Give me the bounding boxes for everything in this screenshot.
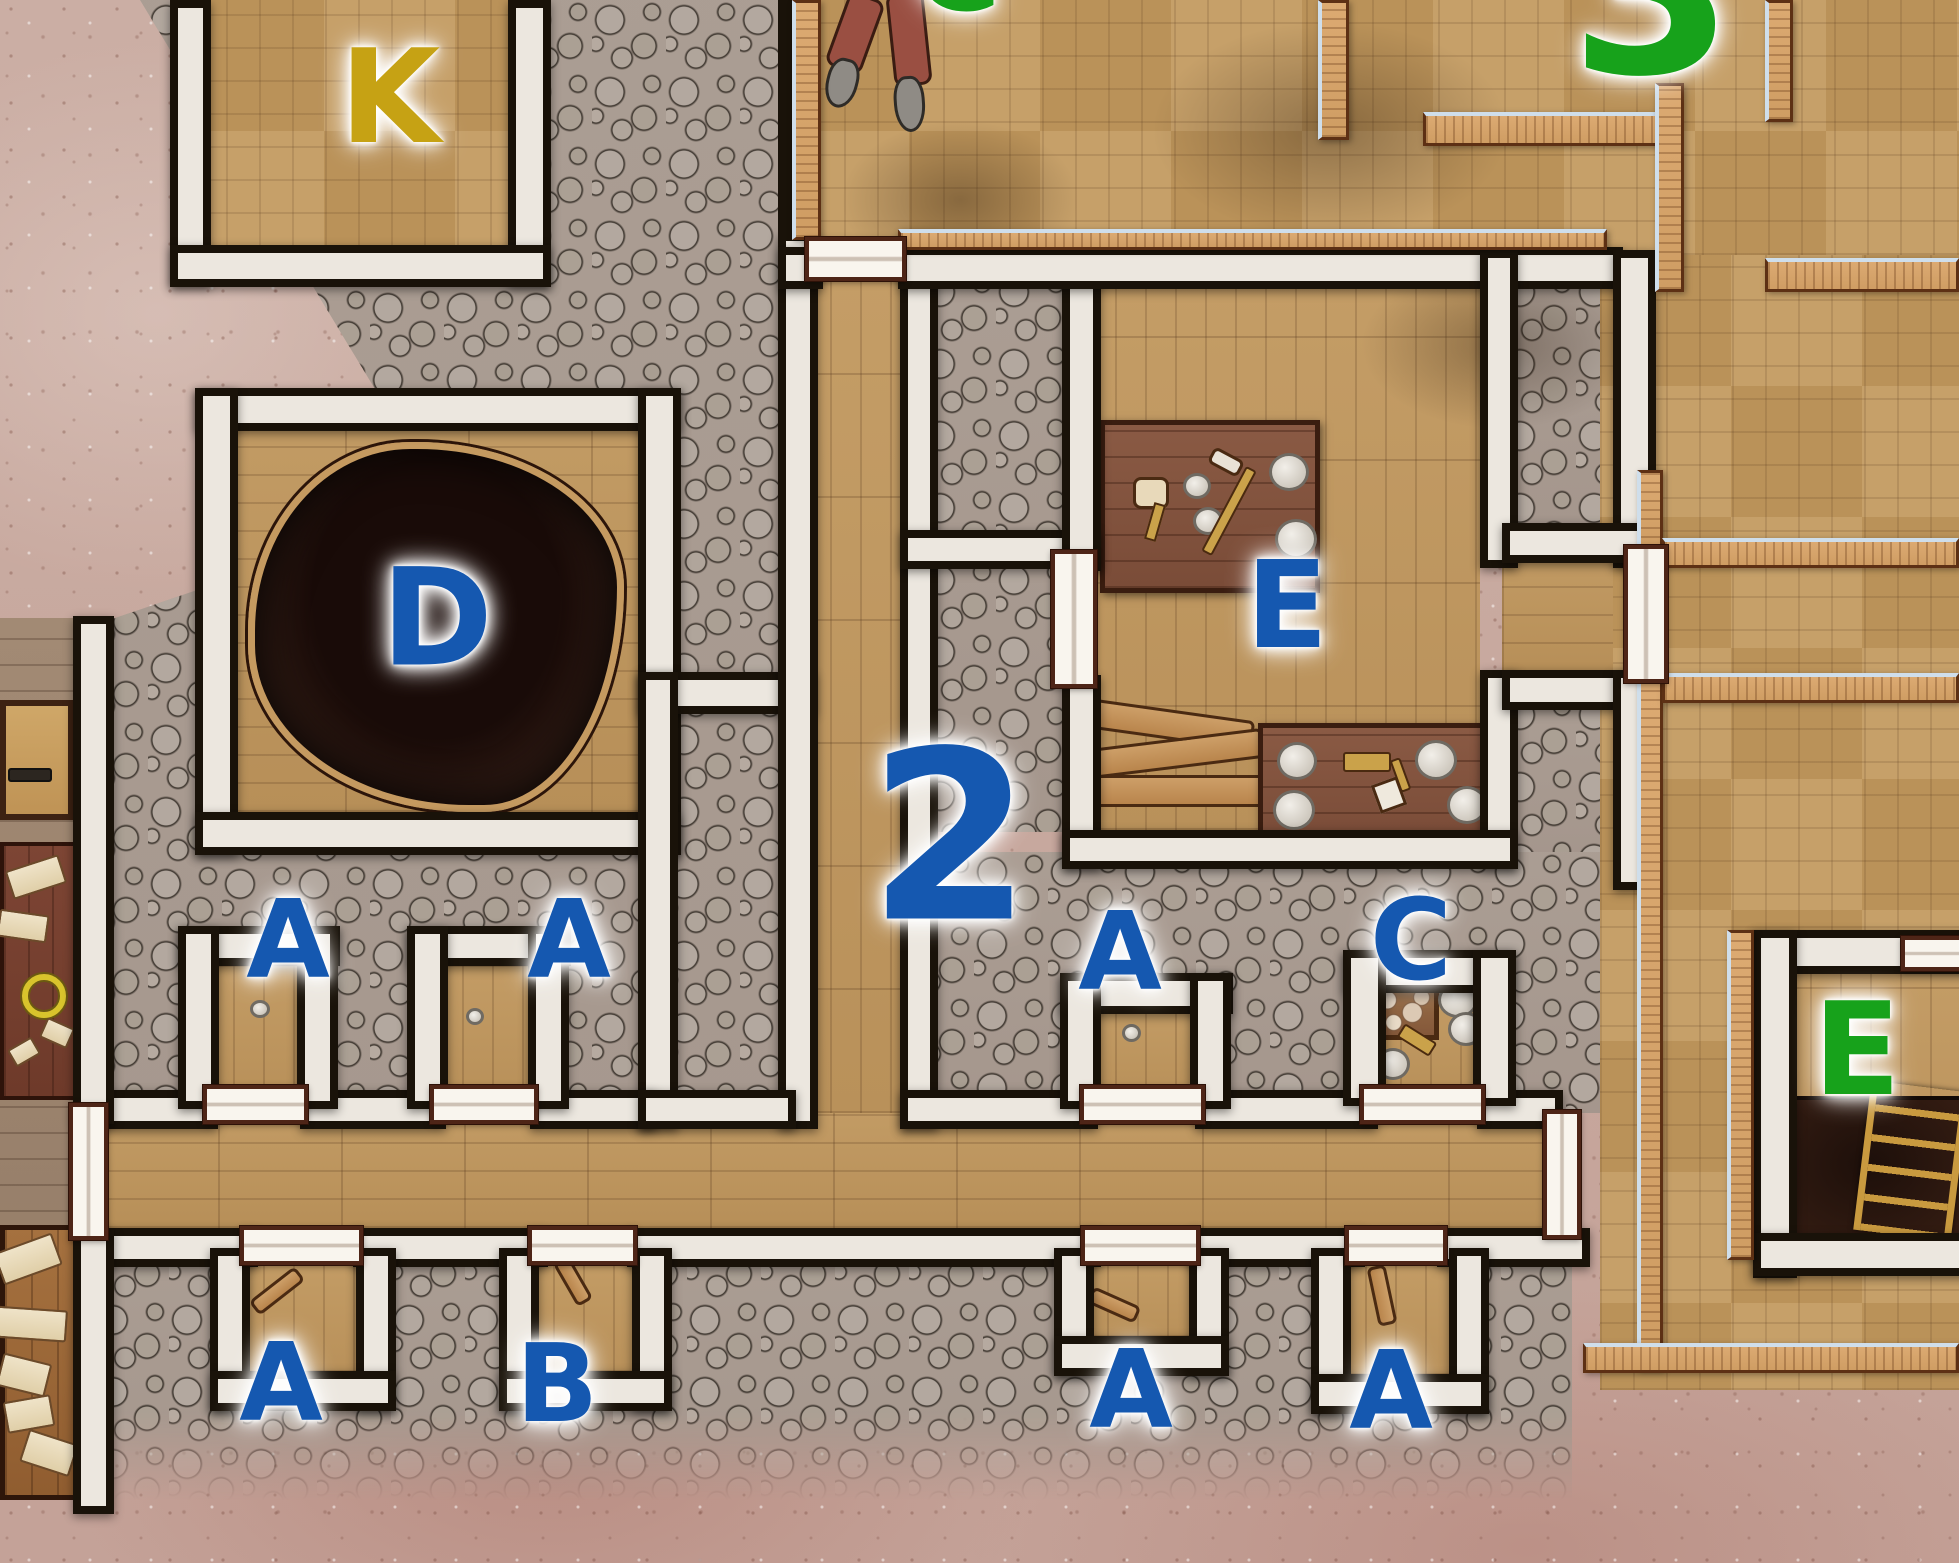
wall — [778, 233, 818, 1129]
scroll-table-upper — [0, 842, 84, 1100]
metal-disc-icon — [1415, 740, 1457, 780]
label-area-3: 3 — [1570, 0, 1734, 110]
wall — [1480, 250, 1518, 568]
door — [203, 1085, 308, 1124]
wall — [195, 812, 681, 855]
plate-icon — [1269, 453, 1309, 491]
bowl-icon — [1183, 473, 1211, 499]
wood-wall — [1662, 673, 1959, 703]
wood-wall — [1637, 670, 1663, 1370]
workbench-bottom — [1258, 723, 1490, 845]
scroll — [0, 1352, 52, 1397]
label-alcove-A-4: A — [239, 1330, 323, 1438]
wood-wall — [1318, 0, 1349, 140]
label-alcove-A-2: A — [527, 887, 611, 995]
label-room-D: D — [381, 551, 493, 686]
pebble — [466, 1008, 484, 1025]
door — [1624, 545, 1668, 683]
wall — [627, 1228, 1101, 1267]
door — [1081, 1226, 1200, 1265]
wall — [1473, 950, 1516, 1106]
wall — [73, 1230, 114, 1514]
wall — [900, 233, 938, 1129]
door — [528, 1226, 637, 1265]
label-alcove-A-5: A — [1089, 1337, 1173, 1445]
scroll — [5, 854, 68, 900]
wall — [1062, 253, 1101, 571]
scroll — [0, 1232, 63, 1285]
plank — [1078, 775, 1266, 807]
wall — [638, 1090, 796, 1129]
corridor-east-stub — [1502, 548, 1613, 672]
wall — [1753, 1233, 1959, 1276]
stone-pocket-3 — [1502, 695, 1613, 852]
door — [240, 1226, 363, 1265]
label-room-E-center: E — [1246, 547, 1328, 667]
door — [1080, 1085, 1205, 1124]
door — [1345, 1226, 1447, 1265]
plank-pile — [1078, 703, 1263, 811]
label-alcove-A-1: A — [246, 887, 330, 995]
hand-plane-icon — [8, 768, 52, 782]
label-area-2: 2 — [868, 721, 1032, 956]
pebble — [1122, 1024, 1141, 1042]
door — [69, 1103, 108, 1240]
corridor-horizontal — [95, 1113, 1572, 1228]
scroll — [0, 909, 50, 944]
label-room-E-east: E — [1813, 987, 1900, 1115]
door — [805, 237, 906, 281]
label-area-C-partial: C — [913, 0, 1001, 30]
wall — [638, 672, 678, 1129]
wood-wall — [1583, 1343, 1959, 1373]
scroll — [0, 1305, 68, 1342]
desk — [0, 700, 74, 820]
wall — [170, 0, 211, 286]
door — [1360, 1085, 1485, 1124]
paper-slip — [7, 1036, 41, 1067]
gold-ring-icon — [22, 974, 66, 1018]
label-room-K: K — [340, 32, 441, 162]
wall — [1062, 830, 1518, 869]
wall — [195, 388, 238, 855]
wood-wall — [1727, 930, 1754, 1260]
label-alcove-C: C — [1370, 885, 1452, 997]
door — [430, 1085, 538, 1124]
door — [1543, 1110, 1581, 1239]
scroll — [3, 1394, 56, 1434]
scroll — [19, 1429, 79, 1477]
wood-wall — [1765, 0, 1793, 122]
wall — [1753, 930, 1797, 1278]
paper-slip — [39, 1017, 75, 1049]
hammer-head — [1207, 446, 1245, 478]
wall — [170, 245, 551, 287]
wood-wall — [1662, 538, 1959, 568]
wall — [508, 0, 551, 286]
label-alcove-B: B — [516, 1331, 598, 1439]
wood-wall — [792, 0, 821, 240]
brush-icon — [1343, 752, 1391, 772]
wall — [178, 926, 219, 1109]
wall — [195, 388, 681, 431]
wall — [73, 616, 114, 1124]
label-alcove-A-3: A — [1078, 899, 1162, 1007]
wood-wall — [1637, 470, 1663, 550]
metal-disc-icon — [1277, 742, 1317, 780]
battle-map: K D E 2 A A A C A B A A 3 C E — [0, 0, 1959, 1563]
door — [1051, 550, 1097, 688]
metal-disc-icon — [1273, 790, 1315, 830]
wood-wall — [1765, 258, 1959, 292]
wall-edge — [778, 0, 792, 240]
label-alcove-A-6: A — [1349, 1338, 1433, 1446]
door — [1901, 936, 1959, 971]
wall — [407, 926, 448, 1109]
wood-wall — [898, 229, 1607, 250]
